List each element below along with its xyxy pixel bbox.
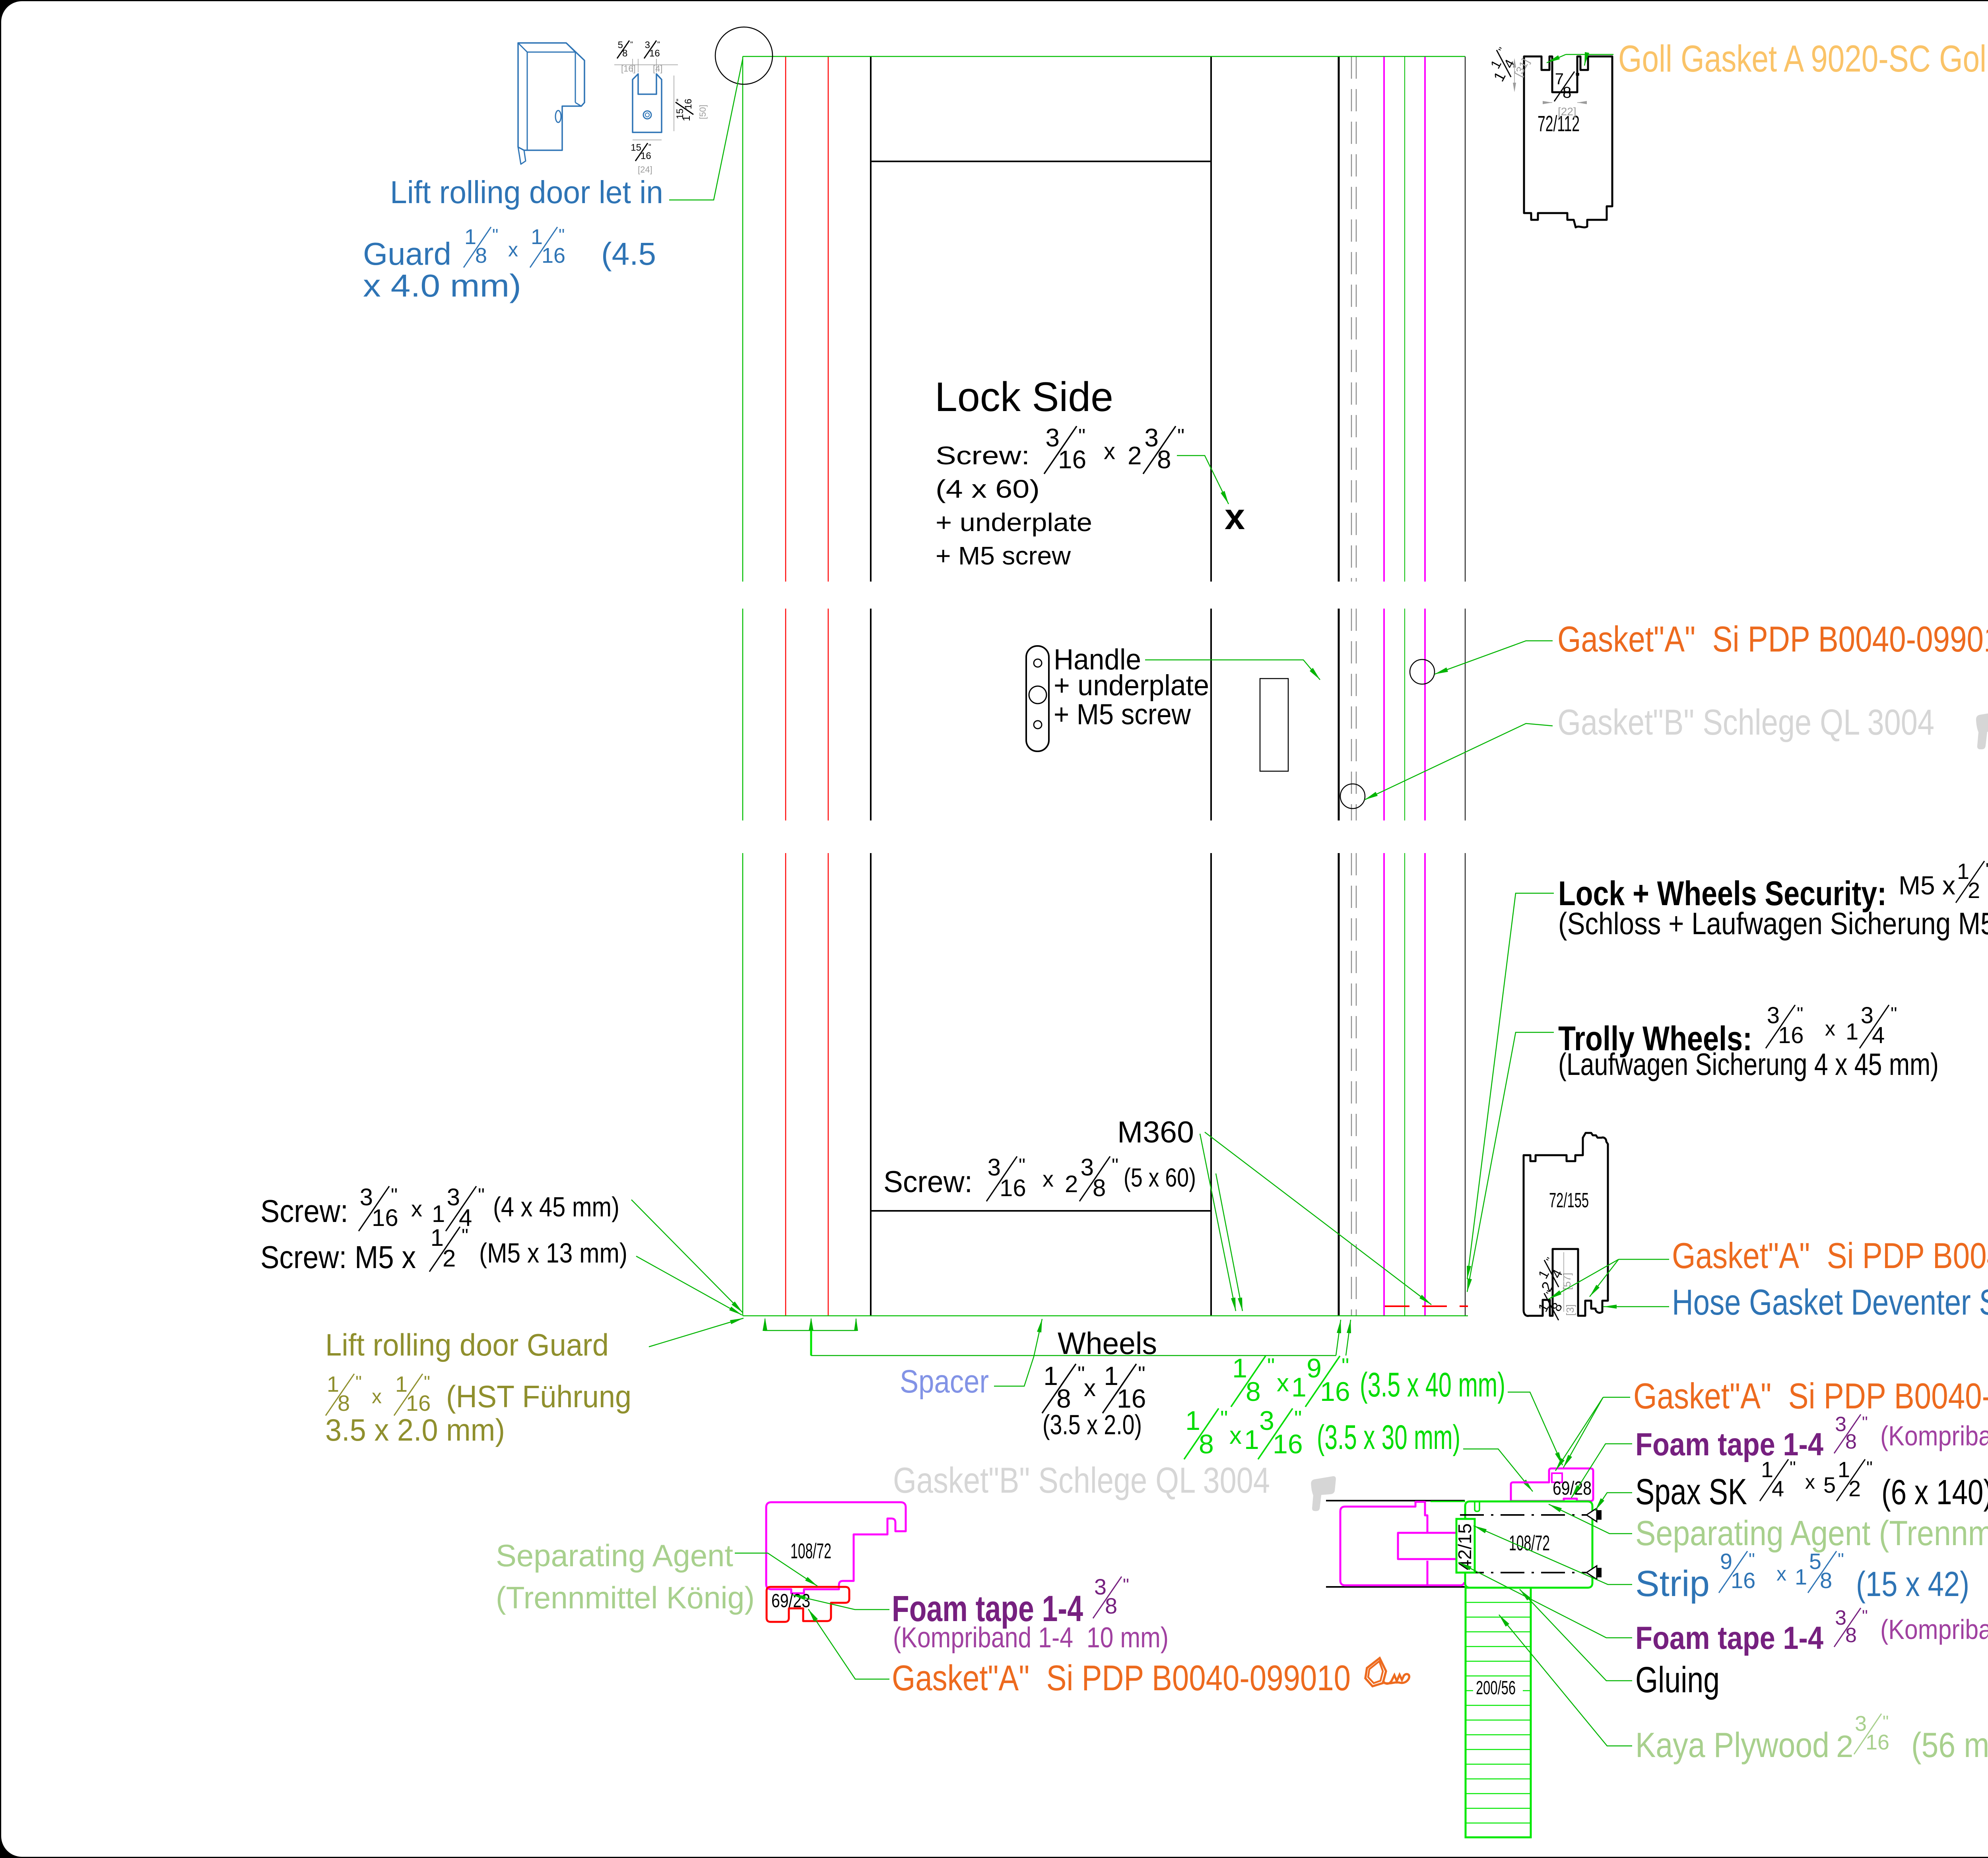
svg-text:(5 x 60): (5 x 60) (1124, 1163, 1196, 1192)
svg-text:": " (492, 226, 498, 245)
svg-text:+ M5 screw: + M5 screw (1054, 698, 1191, 731)
svg-text:(HST Führung: (HST Führung (446, 1379, 631, 1414)
svg-text:Goll Gasket A 9020-SC Goll: Goll Gasket A 9020-SC Goll (1618, 38, 1988, 80)
svg-text:": " (1986, 859, 1988, 879)
svg-text:1: 1 (1291, 1372, 1307, 1402)
svg-text:2: 2 (1065, 1171, 1078, 1197)
svg-text:(4 x 45 mm): (4 x 45 mm) (493, 1191, 619, 1222)
svg-text:x: x (1805, 1471, 1815, 1493)
svg-text:": " (1862, 1606, 1868, 1625)
svg-text:(Laufwagen Sicherung 4 x 45 mm: (Laufwagen Sicherung 4 x 45 mm) (1558, 1047, 1939, 1082)
svg-text:[50]: [50] (698, 105, 708, 119)
svg-text:Kaya Plywood: Kaya Plywood (1635, 1725, 1829, 1765)
svg-text:5: 5 (1823, 1472, 1836, 1497)
svg-text:16: 16 (1866, 1730, 1889, 1754)
svg-text:8: 8 (622, 48, 627, 59)
svg-text:Lift rolling door Guard: Lift rolling door Guard (325, 1327, 609, 1362)
svg-text:+ underplate: + underplate (1054, 669, 1209, 702)
svg-text:16: 16 (1731, 1568, 1755, 1593)
svg-text:72/155: 72/155 (1549, 1189, 1589, 1212)
svg-text:8: 8 (1157, 445, 1171, 474)
svg-text:Gasket"A" Si PDP B0040-099010: Gasket"A" Si PDP B0040-099010 (1672, 1236, 1988, 1276)
svg-text:Strip: Strip (1635, 1563, 1710, 1604)
svg-text:8: 8 (1820, 1568, 1832, 1593)
svg-text:16: 16 (1117, 1384, 1146, 1413)
svg-text:8: 8 (1246, 1377, 1261, 1407)
svg-text:Spacer: Spacer (900, 1363, 989, 1400)
svg-text:[4]: [4] (653, 64, 662, 74)
svg-text:16: 16 (649, 48, 660, 59)
svg-text:16: 16 (683, 99, 694, 109)
svg-text:15: 15 (675, 109, 685, 119)
svg-text:3: 3 (1259, 1406, 1274, 1436)
svg-text:Gluing: Gluing (1635, 1660, 1720, 1700)
svg-text:x: x (372, 1385, 382, 1408)
svg-text:": " (1797, 1003, 1803, 1024)
svg-text:": " (1267, 1354, 1275, 1378)
svg-text:3: 3 (1081, 1154, 1094, 1181)
svg-text:": " (1891, 1003, 1897, 1024)
svg-text:[24]: [24] (638, 165, 652, 175)
svg-text:16: 16 (641, 151, 651, 161)
svg-text:4: 4 (1872, 1022, 1885, 1048)
svg-text:8: 8 (1199, 1429, 1214, 1459)
svg-text:2: 2 (1836, 1729, 1853, 1764)
svg-text:x: x (1084, 1375, 1096, 1401)
svg-text:2: 2 (1128, 441, 1142, 470)
svg-text:1: 1 (431, 1224, 444, 1251)
svg-text:1: 1 (1043, 1361, 1058, 1391)
svg-text:Lift rolling door let in: Lift rolling door let in (390, 175, 663, 210)
svg-text:Gasket"B" Schlege QL 3004: Gasket"B" Schlege QL 3004 (1557, 702, 1934, 743)
svg-text:": " (1112, 1155, 1118, 1176)
svg-text:(3.5 x 40 mm): (3.5 x 40 mm) (1360, 1366, 1505, 1404)
svg-text:x: x (1277, 1369, 1289, 1397)
svg-text:8: 8 (1563, 84, 1571, 101)
svg-text:200/56: 200/56 (1476, 1678, 1516, 1699)
svg-text:Foam tape 1-4: Foam tape 1-4 (1635, 1620, 1823, 1656)
svg-text:x: x (1776, 1563, 1786, 1585)
svg-text:": " (1294, 1406, 1302, 1431)
svg-text:1: 1 (1232, 1353, 1247, 1383)
svg-text:x: x (1225, 497, 1245, 537)
svg-text:Lock Side: Lock Side (935, 374, 1113, 420)
svg-text:(3.5 x 30 mm): (3.5 x 30 mm) (1317, 1418, 1460, 1457)
svg-text:": " (391, 1185, 398, 1206)
svg-text:3: 3 (1144, 423, 1159, 452)
svg-text:16: 16 (1778, 1022, 1804, 1048)
svg-text:(Kompriband 1-4 10 mm): (Kompriband 1-4 10 mm) (1880, 1614, 1988, 1645)
svg-text:108/72: 108/72 (1509, 1531, 1550, 1555)
svg-text:": " (1790, 1458, 1796, 1478)
svg-text:(Schloss + Laufwagen Sicherung: (Schloss + Laufwagen Sicherung M5 x 13 m… (1558, 906, 1988, 941)
svg-text:(6 x 140): (6 x 140) (1881, 1472, 1988, 1512)
svg-text:": " (1862, 1413, 1868, 1431)
svg-text:4: 4 (1772, 1476, 1784, 1501)
svg-text:Wheels: Wheels (1058, 1326, 1157, 1361)
svg-text:8: 8 (1845, 1430, 1857, 1453)
svg-text:16: 16 (406, 1391, 431, 1416)
svg-text:42/15: 42/15 (1454, 1523, 1475, 1570)
svg-text:15: 15 (631, 142, 641, 153)
svg-text:[16]: [16] (621, 64, 636, 74)
svg-text:": " (1078, 425, 1085, 447)
svg-text:x: x (1043, 1166, 1054, 1191)
svg-text:": " (355, 1372, 362, 1392)
svg-text:x: x (411, 1196, 422, 1221)
svg-text:(Kompriband 1-4 10 mm): (Kompriband 1-4 10 mm) (1880, 1420, 1988, 1451)
svg-text:[57]: [57] (1561, 1273, 1573, 1290)
svg-text:108/72: 108/72 (790, 1539, 831, 1563)
svg-text:Gasket"A" Si PDP B0040-099010: Gasket"A" Si PDP B0040-099010 (1557, 619, 1988, 659)
svg-text:+ underplate: + underplate (936, 508, 1092, 537)
svg-text:Guard: Guard (363, 236, 451, 272)
svg-text:Separating Agent: Separating Agent (496, 1538, 733, 1573)
svg-text:1: 1 (1104, 1361, 1118, 1391)
svg-text:8: 8 (1056, 1384, 1071, 1413)
svg-text:(15 x 42): (15 x 42) (1856, 1564, 1969, 1604)
svg-text:x: x (508, 239, 518, 261)
svg-text:M5 x: M5 x (1899, 871, 1955, 900)
svg-text:1: 1 (432, 1201, 445, 1227)
svg-text:16: 16 (1273, 1429, 1303, 1459)
svg-text:x: x (1104, 438, 1115, 464)
svg-text:1: 1 (464, 225, 476, 249)
svg-text:Screw:: Screw: (936, 441, 1030, 470)
svg-text:x 4.0 mm): x 4.0 mm) (363, 268, 521, 303)
svg-text:8: 8 (475, 244, 487, 268)
svg-text:Hose Gasket Deventer S 9608: Hose Gasket Deventer S 9608 (1672, 1282, 1988, 1323)
svg-text:": " (1575, 70, 1580, 85)
svg-text:x: x (1825, 1017, 1835, 1040)
svg-text:3: 3 (1045, 423, 1060, 452)
svg-text:Foam tape 1-4: Foam tape 1-4 (1635, 1427, 1823, 1462)
svg-text:1: 1 (1795, 1564, 1807, 1589)
svg-text:8: 8 (338, 1391, 350, 1416)
svg-text:": " (630, 41, 633, 49)
svg-text:": " (478, 1185, 485, 1206)
svg-text:16: 16 (1000, 1175, 1026, 1201)
svg-text:8: 8 (1105, 1593, 1117, 1618)
svg-text:1: 1 (1185, 1406, 1200, 1436)
svg-text:8: 8 (1093, 1175, 1106, 1201)
svg-text:16: 16 (372, 1204, 398, 1231)
svg-text:": " (462, 1226, 468, 1247)
svg-text:(M5 x 13 mm): (M5 x 13 mm) (479, 1237, 627, 1268)
svg-text:": " (648, 143, 651, 151)
svg-text:(56 mm): (56 mm) (1911, 1725, 1988, 1765)
svg-text:Gasket"A" Si PDP B0040-099010: Gasket"A" Si PDP B0040-099010 (1633, 1376, 1988, 1416)
svg-text:+ M5 screw: + M5 screw (936, 541, 1071, 570)
svg-text:": " (1177, 425, 1184, 447)
svg-text:3: 3 (988, 1154, 1001, 1181)
svg-text:Gasket"A" Si PDP B0040-099010: Gasket"A" Si PDP B0040-099010 (892, 1658, 1351, 1698)
svg-text:Spax SK: Spax SK (1635, 1472, 1747, 1512)
svg-text:3: 3 (1855, 1712, 1867, 1736)
svg-text:16: 16 (1320, 1377, 1350, 1407)
svg-text:": " (1866, 1458, 1873, 1478)
svg-text:3: 3 (447, 1184, 460, 1210)
svg-text:(Trennmittel König): (Trennmittel König) (496, 1580, 755, 1615)
svg-text:8: 8 (1845, 1624, 1857, 1647)
svg-text:[3]: [3] (1564, 1304, 1576, 1316)
svg-text:(4 x 60): (4 x 60) (936, 475, 1040, 503)
svg-text:(3.5 x 2.0): (3.5 x 2.0) (1043, 1409, 1142, 1440)
svg-text:": " (424, 1372, 430, 1392)
svg-text:Screw:: Screw: (260, 1193, 348, 1229)
svg-text:": " (1019, 1155, 1025, 1176)
svg-text:": " (1123, 1575, 1129, 1595)
svg-text:69/23: 69/23 (771, 1590, 810, 1612)
svg-text:": " (1838, 1550, 1844, 1569)
svg-text:": " (1138, 1362, 1145, 1386)
svg-text:Screw: M5 x: Screw: M5 x (260, 1239, 416, 1275)
svg-text:2: 2 (1848, 1476, 1861, 1501)
svg-text:3: 3 (1835, 1606, 1846, 1629)
svg-text:1: 1 (1846, 1019, 1858, 1045)
svg-text:": " (1883, 1713, 1889, 1732)
svg-text:": " (1342, 1354, 1349, 1378)
svg-text:": " (559, 226, 565, 245)
svg-text:Gasket"B" Schlege QL 3004: Gasket"B" Schlege QL 3004 (893, 1460, 1270, 1501)
svg-text:3: 3 (1835, 1413, 1846, 1436)
svg-text:": " (1220, 1406, 1228, 1431)
svg-text:[22]: [22] (1558, 105, 1576, 118)
svg-text:": " (1749, 1550, 1755, 1569)
svg-text:": " (657, 41, 660, 49)
svg-text:9: 9 (1307, 1353, 1322, 1383)
svg-text:3.5 x 2.0 mm): 3.5 x 2.0 mm) (325, 1412, 505, 1447)
svg-text:16: 16 (542, 244, 565, 268)
svg-text:16: 16 (1058, 445, 1086, 474)
svg-text:M360: M360 (1117, 1115, 1194, 1149)
svg-text:2: 2 (1968, 878, 1980, 903)
svg-text:(4.5: (4.5 (601, 236, 656, 272)
svg-text:Screw:: Screw: (883, 1165, 973, 1199)
svg-text:2: 2 (443, 1245, 456, 1272)
svg-text:1: 1 (1244, 1425, 1259, 1455)
svg-text:(Kompriband 1-4 10 mm): (Kompriband 1-4 10 mm) (893, 1622, 1169, 1654)
svg-text:1: 1 (531, 225, 543, 249)
svg-text:": " (676, 99, 684, 101)
svg-text:Separating Agent (Trennmittel: Separating Agent (Trennmittel König) (1635, 1513, 1988, 1553)
svg-text:3: 3 (360, 1184, 373, 1210)
svg-text:x: x (1229, 1422, 1242, 1449)
